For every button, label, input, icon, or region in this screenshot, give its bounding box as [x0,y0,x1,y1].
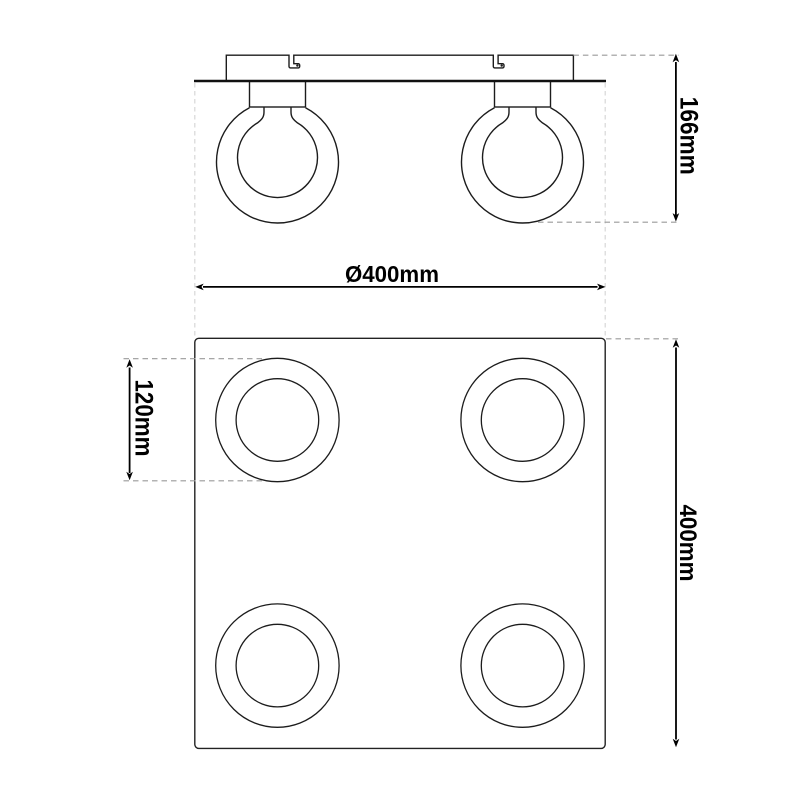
svg-text:166mm: 166mm [675,97,703,175]
svg-text:400mm: 400mm [674,505,701,582]
svg-text:Ø400mm: Ø400mm [345,261,439,287]
svg-text:120mm: 120mm [130,380,158,457]
